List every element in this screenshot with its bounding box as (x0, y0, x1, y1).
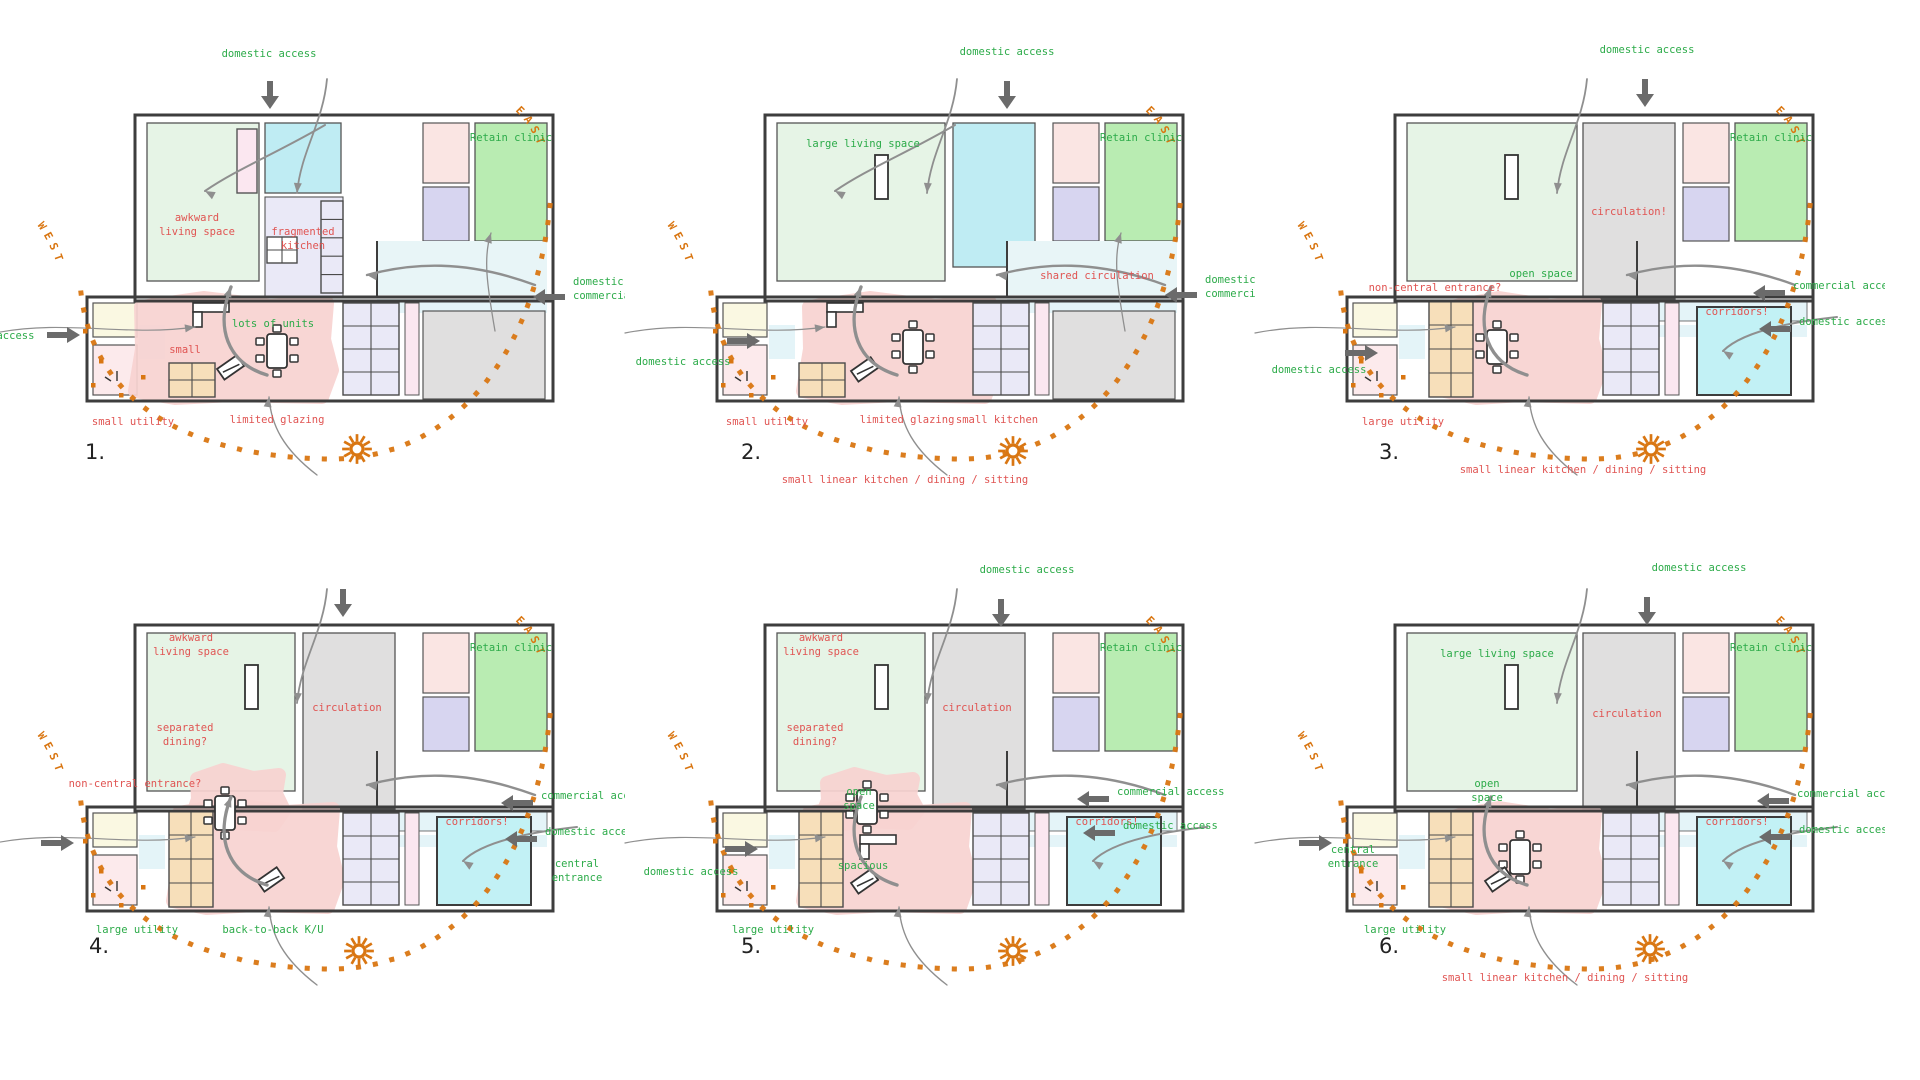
label-large-utility: large utility (1364, 924, 1446, 936)
label-retain-clinic: Retain clinic (470, 132, 552, 144)
label-domestic-access: domestic access (980, 564, 1075, 576)
label-domestic-access: domestic access (1799, 316, 1885, 328)
label-retain-clinic: Retain clinic (470, 642, 552, 654)
label-domestic-access: domestic access (1799, 824, 1885, 836)
floor-plan-diagram-canvas: WESTEASTdomestic accessawkwardliving spa… (0, 0, 1920, 1080)
plan-number: 5. (741, 934, 761, 958)
label-retain-clinic: Retain clinic (1100, 642, 1182, 654)
label-circulation: circulation (1592, 708, 1662, 720)
label-back-to-back-k-u: back-to-back K/U (222, 924, 323, 936)
compass-west: WEST (1295, 220, 1328, 268)
building-rooms (1353, 633, 1807, 908)
label-large-living-space: large living space (806, 138, 920, 150)
label-circulation: circulation (942, 702, 1012, 714)
label-commercial-access: commercial access (1797, 788, 1885, 800)
floor-plan-3: WESTEASTdomestic accessnon-central entra… (1195, 35, 1885, 550)
building-rooms (93, 123, 547, 399)
label-shared-circulation: shared circulation (1040, 270, 1154, 282)
label-retain-clinic: Retain clinic (1730, 132, 1812, 144)
flow-arrow (894, 906, 947, 985)
label-lots-of-units: lots of units (232, 318, 314, 330)
label-limited-glazing: limited glazing (230, 414, 325, 426)
sun-icon (1637, 936, 1664, 963)
building-rooms (723, 633, 1177, 908)
label-corridors: corridors! (445, 816, 508, 828)
label-small: small (169, 344, 201, 356)
floor-plan-4: WESTEASTawkwardliving spaceseparateddini… (0, 545, 625, 1060)
label-small-linear-kitchen-dining-sitting: small linear kitchen / dining / sitting (782, 474, 1029, 486)
label-open-space: open space (1509, 268, 1572, 280)
access-arrow-down (261, 81, 279, 109)
flow-arrow (264, 906, 317, 985)
page: { "title": "Floor plan option study - 6 … (0, 0, 1920, 1080)
floor-plan-6: WESTEASTdomestic accesslarge living spac… (1195, 545, 1885, 1060)
building-rooms (1353, 123, 1807, 398)
compass-west: WEST (35, 730, 68, 778)
label-limited-glazing: limited glazing (860, 414, 955, 426)
label-small-utility: small utility (726, 416, 808, 428)
label-non-central-entrance: non-central entrance? (1369, 282, 1502, 294)
label-domestic-access: domestic access (636, 356, 731, 368)
sun-icon (344, 436, 371, 463)
access-arrow-left (1077, 791, 1109, 807)
access-arrow-left (501, 795, 533, 811)
label-small-linear-kitchen-dining-sitting: small linear kitchen / dining / sitting (1442, 972, 1689, 984)
label-corridors: corridors! (1705, 816, 1768, 828)
label-domestic-access: domestic access (644, 866, 739, 878)
label-small-linear-kitchen-dining-sitting: small linear kitchen / dining / sitting (1460, 464, 1707, 476)
sun-icon (346, 938, 373, 965)
access-arrow-down (334, 589, 352, 617)
label-retain-clinic: Retain clinic (1730, 642, 1812, 654)
floor-plan-1: WESTEASTdomestic accessawkwardliving spa… (0, 35, 625, 550)
access-arrow-down (998, 81, 1016, 109)
label-commercial-access: commercial access (1793, 280, 1885, 292)
access-arrow-left (1753, 285, 1785, 301)
compass-west: WEST (1295, 730, 1328, 778)
plan-number: 1. (85, 440, 105, 464)
plan-number: 2. (741, 440, 761, 464)
label-domestic-access: domestic access (1600, 44, 1695, 56)
compass-west: WEST (35, 220, 68, 268)
label-spacious: spacious (838, 860, 889, 872)
label-domestic-access: domestic access (1652, 562, 1747, 574)
label-corridors: corridors! (1705, 306, 1768, 318)
label-non-central-entrance: non-central entrance? (69, 778, 202, 790)
sun-icon (1000, 438, 1027, 465)
label-circulation: circulation! (1591, 206, 1667, 218)
sun-icon (1638, 436, 1665, 463)
access-arrow-down (1636, 79, 1654, 107)
plan-number: 3. (1379, 440, 1399, 464)
building-rooms (723, 123, 1177, 399)
label-large-living-space: large living space (1440, 648, 1554, 660)
access-arrow-down (992, 599, 1010, 627)
label-retain-clinic: Retain clinic (1100, 132, 1182, 144)
plan-number: 6. (1379, 934, 1399, 958)
compass-west: WEST (665, 730, 698, 778)
kitchen-dining-zone (135, 298, 332, 398)
label-large-utility: large utility (1362, 416, 1444, 428)
label-domestic-access: domestic access (0, 330, 34, 342)
compass-west: WEST (665, 220, 698, 268)
plan-number: 4. (89, 934, 109, 958)
label-domestic-access: domestic access (222, 48, 317, 60)
access-arrow-right (47, 327, 80, 343)
access-arrow-down (1638, 597, 1656, 625)
floor-plan-5: WESTEASTdomestic accessawkwardliving spa… (565, 545, 1255, 1060)
label-small-kitchen: small kitchen (956, 414, 1038, 426)
label-small-utility: small utility (92, 416, 174, 428)
label-domestic-access: domestic access (960, 46, 1055, 58)
building-rooms (93, 633, 547, 908)
label-domestic-access: domestic access (1272, 364, 1367, 376)
flow-arrow (264, 396, 317, 475)
floor-plan-2: WESTEASTdomestic accesslarge living spac… (565, 35, 1255, 550)
label-circulation: circulation (312, 702, 382, 714)
flow-arrow (894, 396, 947, 475)
